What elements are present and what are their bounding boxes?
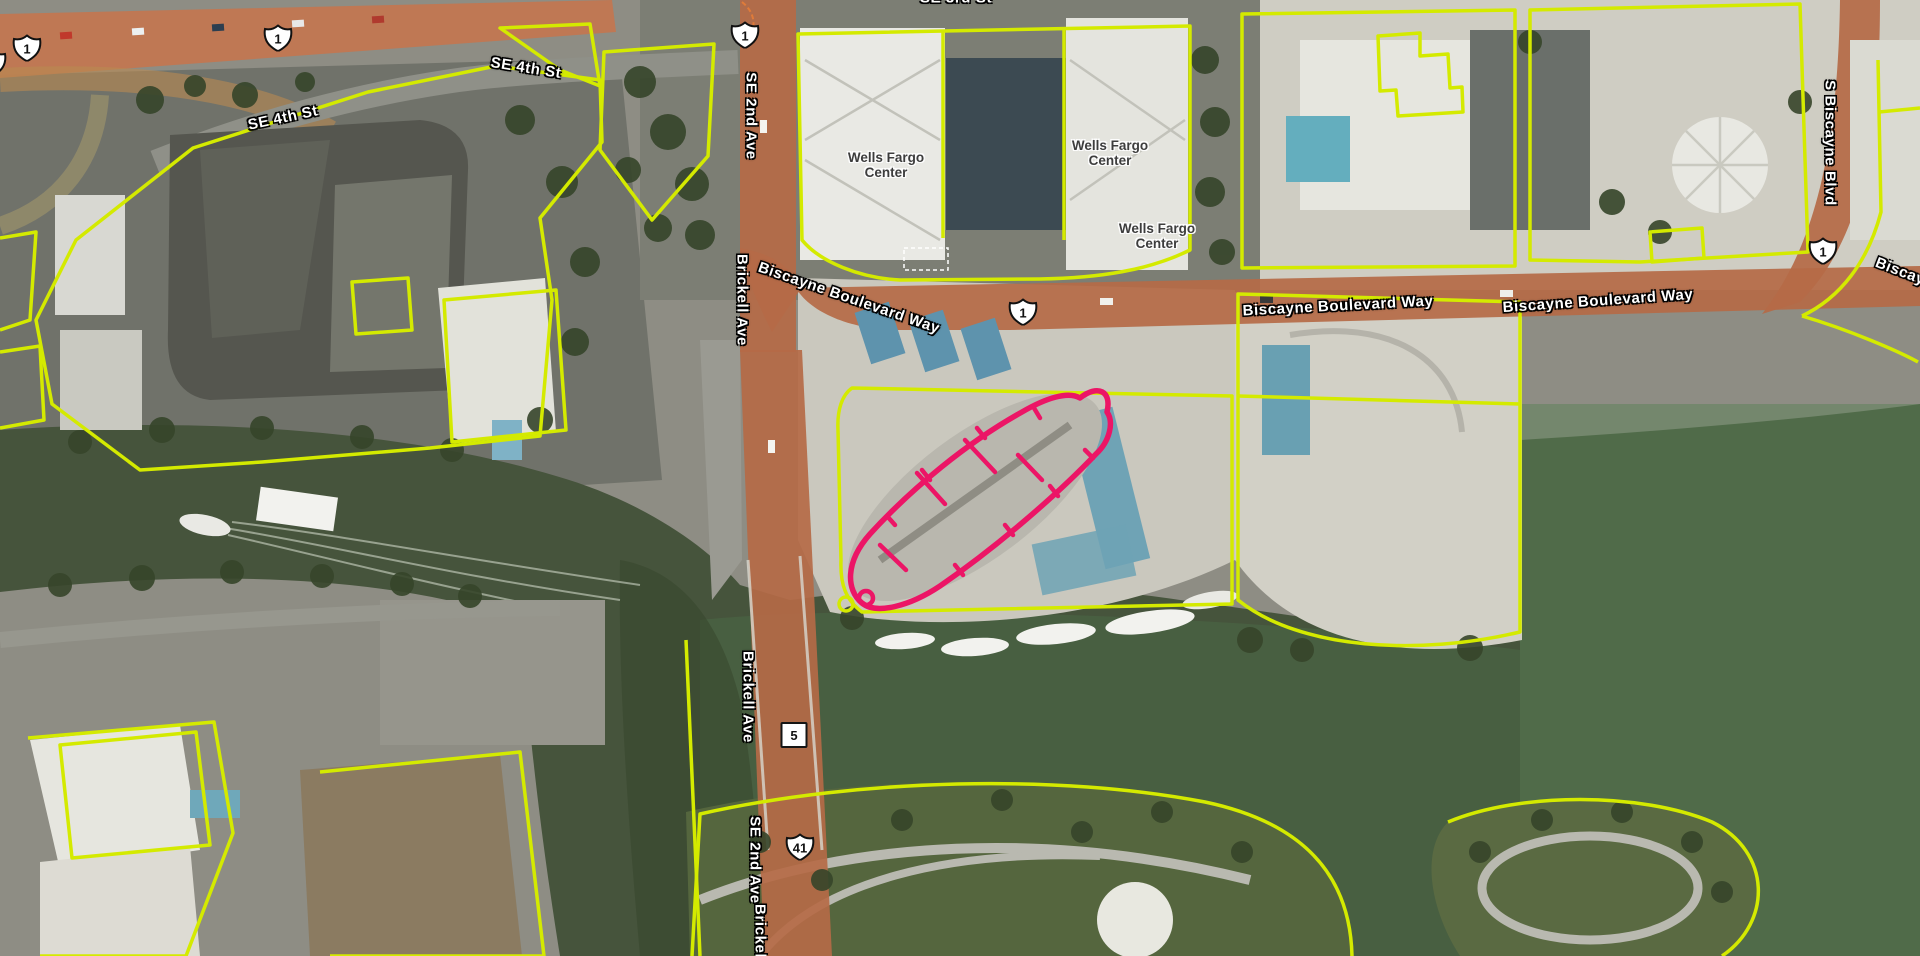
- sw-tower-2: [40, 846, 200, 956]
- building-west-2: [60, 330, 142, 430]
- building-west-1: [55, 195, 125, 315]
- building-label-wells-fargo-3: Wells Fargo Center: [1119, 221, 1195, 251]
- street-label-brickell-ave-bottom: Brickell Ave: [752, 904, 769, 956]
- dirt-lot: [300, 754, 522, 956]
- ne-pool: [1286, 116, 1350, 182]
- ne-building-3: [1850, 40, 1920, 240]
- parking-area: [380, 600, 605, 745]
- round-building-spokes: [1672, 117, 1768, 213]
- street-label-se-2nd-ave-south: SE 2nd Ave: [747, 816, 764, 903]
- street-label-se-3rd-st: SE 3rd St: [920, 0, 992, 7]
- building-label-line: Center: [1072, 153, 1148, 168]
- arena-roof-east: [330, 175, 452, 372]
- street-label-brickell-ave-north: Brickell Ave: [734, 254, 751, 346]
- florida-state-road-5-shield: 5: [781, 722, 808, 748]
- us-route-1-shield-clipped: 1: [0, 50, 7, 77]
- building-label-wells-fargo-2: Wells Fargo Center: [1072, 138, 1148, 168]
- us-route-1-shield: 1: [12, 35, 42, 62]
- building-label-line: Center: [848, 165, 924, 180]
- building-label-line: Wells Fargo: [1119, 221, 1195, 236]
- sw-pool: [190, 790, 240, 818]
- east-pool: [1262, 345, 1310, 455]
- street-label-s-biscayne-blvd: S Biscayne Blvd: [1822, 80, 1839, 206]
- us-route-1-shield: 1: [1808, 238, 1838, 265]
- building-label-wells-fargo-1: Wells Fargo Center: [848, 150, 924, 180]
- us-route-1-shield: 1: [730, 22, 760, 49]
- us-route-1-shield: 1: [1008, 299, 1038, 326]
- aerial-basemap[interactable]: [0, 0, 1920, 956]
- building-label-line: Wells Fargo: [1072, 138, 1148, 153]
- map-viewport[interactable]: SE 3rd St SE 4th St SE 4th St SE 2nd Ave…: [0, 0, 1920, 956]
- park-plaza-circle: [1097, 882, 1173, 956]
- wells-fargo-west-tower: [800, 28, 945, 260]
- street-label-se-2nd-ave-north: SE 2nd Ave: [743, 72, 760, 159]
- street-label-brickell-ave-bridge: Brickell Ave: [740, 651, 757, 743]
- us-route-1-shield: 1: [263, 25, 293, 52]
- building-label-line: Center: [1119, 236, 1195, 251]
- building-label-line: Wells Fargo: [848, 150, 924, 165]
- us-route-41-shield: 41: [784, 834, 817, 861]
- rooftop-pool-deck: [946, 58, 1066, 230]
